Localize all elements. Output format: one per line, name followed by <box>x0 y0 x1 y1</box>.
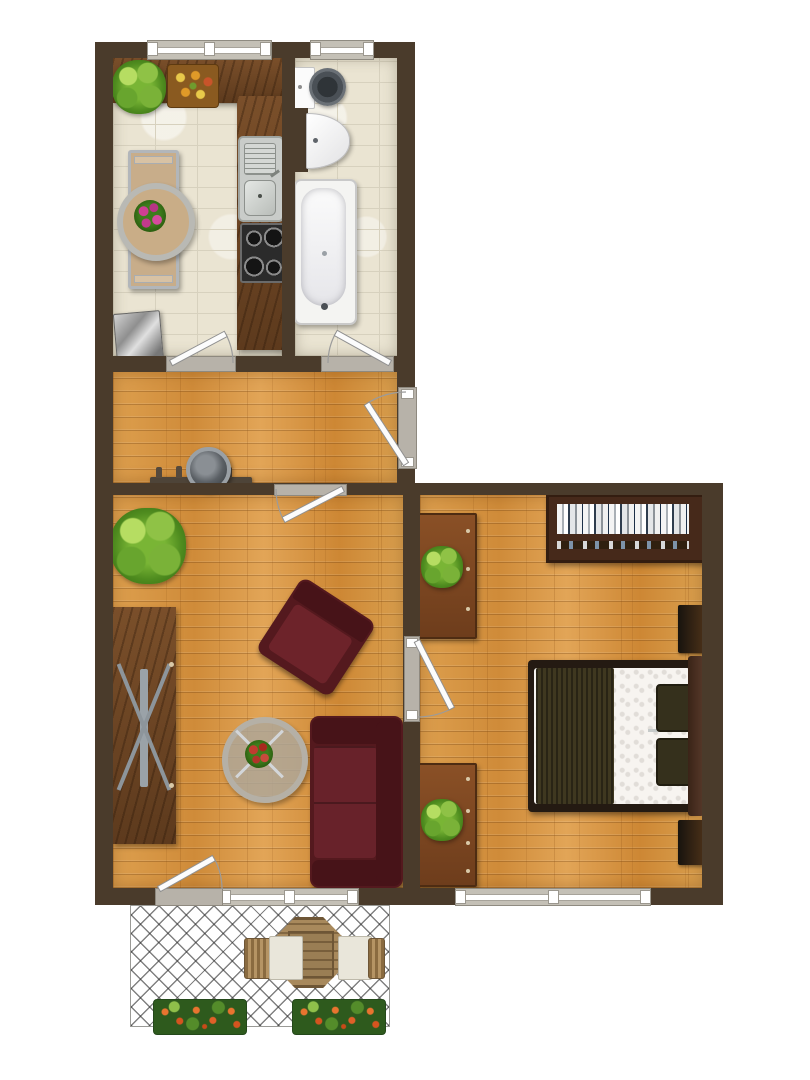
balcony-door-threshold <box>155 888 223 906</box>
table-end-rail <box>134 156 173 164</box>
chest-knob <box>466 567 470 571</box>
chest-knob <box>466 529 470 533</box>
bedroom-door-frame <box>404 636 420 722</box>
sofa-backrest <box>376 722 401 882</box>
sink-drain <box>258 194 262 198</box>
window-mullion <box>347 890 358 904</box>
bedroom-plant-lower <box>421 799 463 841</box>
bookshelf <box>546 494 706 563</box>
coat-hook <box>176 466 182 478</box>
bathroom-door-threshold <box>321 356 394 372</box>
floor-plan <box>0 0 810 1080</box>
living-room-door-threshold <box>274 484 347 496</box>
bathtub <box>294 179 357 325</box>
bookshelf-books <box>557 504 689 534</box>
window-mullion <box>284 890 295 904</box>
coffee-table-bouquet <box>245 740 273 768</box>
window-mullion <box>363 42 374 56</box>
door-jamb-cap <box>406 710 418 720</box>
wall-kitchen-bathroom <box>282 58 295 358</box>
balcony-chair-left-seat <box>269 936 303 980</box>
sink-drainboard <box>244 143 276 175</box>
nightstand-lower <box>678 820 704 865</box>
wall-hallway-south <box>113 483 723 495</box>
window-mullion <box>260 42 271 56</box>
window-mullion <box>455 890 466 904</box>
table-flower-bouquet <box>134 200 166 232</box>
toilet-flush-button <box>298 85 302 89</box>
bedroom-window <box>455 888 651 906</box>
chest-knob <box>466 777 470 781</box>
table-end-rail <box>134 275 173 283</box>
kitchen-counter-plant <box>112 60 166 114</box>
sofa <box>310 716 403 888</box>
coat-hook <box>156 467 162 478</box>
sofa-seat-cushions <box>314 746 376 858</box>
toilet-bowl <box>309 68 346 106</box>
balcony-chair-right-seat <box>338 936 372 980</box>
kitchen-window <box>147 40 272 60</box>
sideboard <box>113 607 176 844</box>
nightstand-upper <box>678 605 704 653</box>
kitchen-sink <box>238 136 284 222</box>
wall-left <box>95 42 113 905</box>
sink-basin <box>244 180 276 216</box>
bookshelf-items <box>557 541 689 549</box>
chest-knob <box>466 869 470 873</box>
flower-box-left <box>153 999 247 1035</box>
window-mullion <box>147 42 158 56</box>
door-jamb-cap <box>401 389 414 399</box>
living-room-window <box>220 888 359 906</box>
fruit-tray <box>167 64 219 108</box>
door-jamb-cap <box>406 638 418 648</box>
window-mullion <box>310 42 321 56</box>
cooktop <box>240 223 287 283</box>
bed-blanket <box>536 668 614 804</box>
balcony-chair-right-back <box>368 938 385 979</box>
sideboard-knob <box>169 662 174 667</box>
chest-knob <box>466 841 470 845</box>
sideboard-knob <box>169 783 174 788</box>
balcony-chair-left-back <box>244 938 272 979</box>
bedroom-plant-upper <box>421 546 463 588</box>
chest-knob <box>466 607 470 611</box>
entrance-door-frame <box>398 387 417 469</box>
bathroom-window <box>310 40 374 60</box>
window-mullion <box>204 42 215 56</box>
wall-right-bedroom <box>702 483 723 905</box>
chest-knob <box>466 809 470 813</box>
bathtub-interior <box>301 188 346 306</box>
door-jamb-cap <box>401 457 414 467</box>
living-room-plant <box>110 508 186 584</box>
bathtub-drain <box>322 251 327 256</box>
hallway-floor <box>113 372 397 483</box>
basin-faucet <box>313 138 318 143</box>
window-mullion <box>640 890 651 904</box>
flower-box-right <box>292 999 386 1035</box>
kitchen-door-threshold <box>166 356 236 372</box>
window-mullion <box>548 890 559 904</box>
bathtub-faucet <box>321 303 328 310</box>
